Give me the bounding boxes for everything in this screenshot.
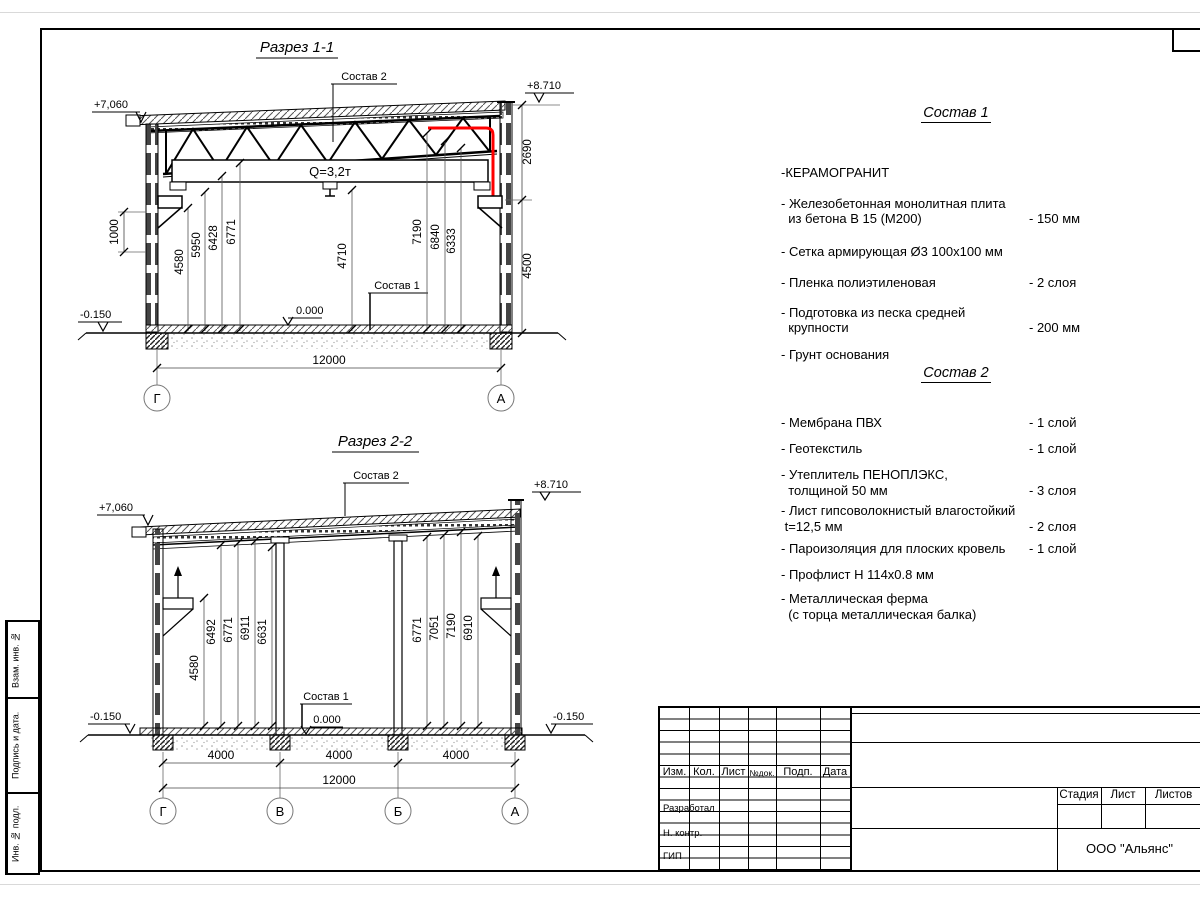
dim2-6910: 6910 — [463, 615, 475, 641]
dim-7190: 7190 — [412, 219, 424, 245]
role-ncontrol: Н. контр. — [663, 828, 702, 839]
title-block: Изм. Кол. Лист №док. Подп. Дата Разработ… — [658, 706, 1200, 872]
composition-2-list: Состав 2 - Мембрана ПВХ- 1 слой - Геотек… — [781, 364, 1193, 622]
dim-6333: 6333 — [446, 228, 458, 254]
elev-eave-label-2: +7,060 — [99, 502, 133, 514]
dim-bay-1: 4000 — [208, 748, 235, 762]
dim2-6771-right: 6771 — [412, 617, 424, 643]
stamp-cell-podpis: Подпись и дата. — [5, 697, 40, 794]
dim-bay-3: 4000 — [443, 748, 470, 762]
section2-title: Разрез 2-2 — [338, 433, 413, 450]
stamp-cell-vzam: Взам. инв. № — [5, 620, 40, 699]
dim2-6492: 6492 — [206, 619, 218, 645]
section-2-2-drawing: Разрез 2-2 Состав 2 — [70, 430, 610, 840]
col-kol: Кол. — [689, 766, 719, 778]
title-block-revision-table: Изм. Кол. Лист №док. Подп. Дата Разработ… — [660, 708, 852, 870]
grid-line — [850, 828, 1200, 829]
dim-6771: 6771 — [226, 219, 238, 245]
sostav1-label-2: Состав 1 — [303, 691, 349, 703]
sostav2-leader-2: Состав 2 — [343, 470, 409, 516]
composition-2-title: Состав 2 — [781, 364, 1131, 382]
list-item: - Утеплитель ПЕНОПЛЭКС, толщиной 50 мм- … — [781, 467, 1193, 498]
list-item: - Пароизоляция для плоских кровель- 1 сл… — [781, 541, 1193, 557]
stamp-label-vzam: Взам. инв. № — [7, 622, 23, 697]
col-izm: Изм. — [660, 766, 689, 778]
sostav2-label-2: Состав 2 — [353, 470, 399, 482]
stamp-blank — [23, 699, 38, 792]
dim2-7190: 7190 — [446, 613, 458, 639]
dim-1000: 1000 — [109, 219, 121, 245]
grid-line — [748, 708, 749, 870]
frame-top — [40, 28, 1200, 30]
col-data: Дата — [820, 766, 850, 778]
drawing-sheet: { "s1": { "title": "Разрез 1-1", "c2": "… — [0, 0, 1200, 900]
section1-title: Разрез 1-1 — [260, 39, 334, 56]
dim-5950: 5950 — [191, 232, 203, 258]
elev-minus-label: -0.150 — [80, 309, 111, 321]
stamp-blank — [23, 794, 38, 873]
list-item: - Геотекстиль- 1 слой — [781, 441, 1193, 457]
sostav2-label: Состав 2 — [341, 71, 387, 83]
frame-corner-box — [1172, 28, 1200, 52]
elev-eave-label: +7,060 — [94, 99, 128, 111]
dim-right: 2690 4500 — [505, 101, 560, 337]
stage-header: Стадия — [1057, 789, 1101, 801]
sheets-header: Листов — [1145, 789, 1200, 801]
elev-zero-label: 0.000 — [296, 305, 324, 317]
dim2-12000: 12000 — [322, 773, 356, 787]
role-gip: ГИП — [663, 851, 682, 862]
grid-line — [850, 742, 1200, 743]
axis2-v: В — [276, 804, 285, 819]
section-1-1-drawing: Разрез 1-1 Состав 2 Q=3,2т — [70, 36, 580, 416]
list-item: - Подготовка из песка средней крупности-… — [781, 305, 1193, 336]
list-item: - Железобетонная монолитная плита из бет… — [781, 196, 1193, 227]
list-item: - Пленка полиэтиленовая- 2 слоя — [781, 275, 1193, 291]
grid-axes: Г А — [144, 385, 514, 411]
grid-line — [719, 708, 720, 870]
grid-line — [850, 713, 1200, 714]
sheet-edge-bottom — [0, 884, 1200, 885]
col-ndok: №док. — [748, 767, 776, 779]
dim-left-1000: 1000 — [109, 208, 146, 256]
grid-line — [776, 708, 777, 870]
role-developed: Разработал — [663, 803, 715, 814]
stamp-label-podpis: Подпись и дата. — [7, 699, 23, 792]
col-list: Лист — [719, 766, 748, 778]
grid-line — [1057, 804, 1200, 805]
elev-zero-label-2: 0.000 — [313, 714, 341, 726]
axis-g: Г — [153, 391, 160, 406]
floor-ground-2 — [80, 728, 593, 750]
elev-minus-left-label: -0.150 — [90, 711, 121, 723]
crane-capacity-label: Q=3,2т — [309, 164, 351, 179]
sostav1-label: Состав 1 — [374, 280, 420, 292]
dim-6840: 6840 — [430, 224, 442, 250]
stamp-label-inv: Инв. № подл. — [7, 794, 23, 873]
dim-span: 12000 — [153, 350, 505, 385]
dim-4500: 4500 — [522, 253, 534, 279]
dim-2690: 2690 — [522, 139, 534, 165]
elev-top-label: +8.710 — [527, 80, 561, 92]
frame-left — [40, 28, 42, 872]
dim-bay-2: 4000 — [326, 748, 353, 762]
dim2-6911: 6911 — [240, 616, 252, 641]
dim-4710: 4710 — [337, 243, 349, 269]
composition-1-list: Состав 1 -КЕРАМОГРАНИТ - Железобетонная … — [781, 104, 1193, 362]
stamp-blank — [23, 622, 38, 697]
columns — [146, 102, 515, 332]
dim-bays-2: 4000 4000 4000 12000 — [159, 748, 519, 798]
dim-6428: 6428 — [208, 225, 220, 251]
dim2-7051: 7051 — [429, 615, 441, 641]
company-name: ООО "Альянс" — [1057, 843, 1200, 855]
list-item: - Сетка армирующая Ø3 100х100 мм — [781, 244, 1193, 260]
composition-1-title: Состав 1 — [781, 104, 1131, 122]
dim-12000: 12000 — [312, 353, 346, 367]
grid-line — [850, 787, 1200, 788]
list-item: - Грунт основания — [781, 347, 1193, 363]
dim2-6771-left: 6771 — [223, 617, 235, 643]
elev-top-label-2: +8.710 — [534, 479, 568, 491]
axis2-b: Б — [394, 804, 403, 819]
dim2-4580: 4580 — [189, 655, 201, 681]
list-item: - Лист гипсоволокнистый влагостойкий t=1… — [781, 503, 1193, 534]
sheet-header: Лист — [1101, 789, 1145, 801]
axis2-g: Г — [159, 804, 166, 819]
axis2-a: А — [511, 804, 520, 819]
list-item: - Профлист Н 114х0.8 мм — [781, 567, 1193, 583]
elev-minus-right-label: -0.150 — [553, 711, 584, 723]
grid-line — [689, 708, 690, 870]
stamp-cell-inv: Инв. № подл. — [5, 792, 40, 875]
floor-ground — [78, 325, 566, 349]
grid-line — [820, 708, 821, 870]
grid-axes-2: Г В Б А — [150, 798, 528, 824]
col-podp: Подп. — [776, 766, 820, 778]
dim-4580: 4580 — [174, 249, 186, 275]
axis-a: А — [497, 391, 506, 406]
list-item: - Мембрана ПВХ- 1 слой — [781, 415, 1193, 431]
list-item: - Металлическая ферма (с торца металличе… — [781, 591, 1193, 622]
sostav1-leader: Состав 1 — [368, 280, 428, 330]
sheet-edge-top — [0, 12, 1200, 13]
crane-beam: Q=3,2т — [170, 160, 490, 196]
list-item: -КЕРАМОГРАНИТ — [781, 165, 1193, 181]
roof-assembly-2 — [132, 509, 520, 549]
dim2-6631: 6631 — [257, 619, 269, 645]
